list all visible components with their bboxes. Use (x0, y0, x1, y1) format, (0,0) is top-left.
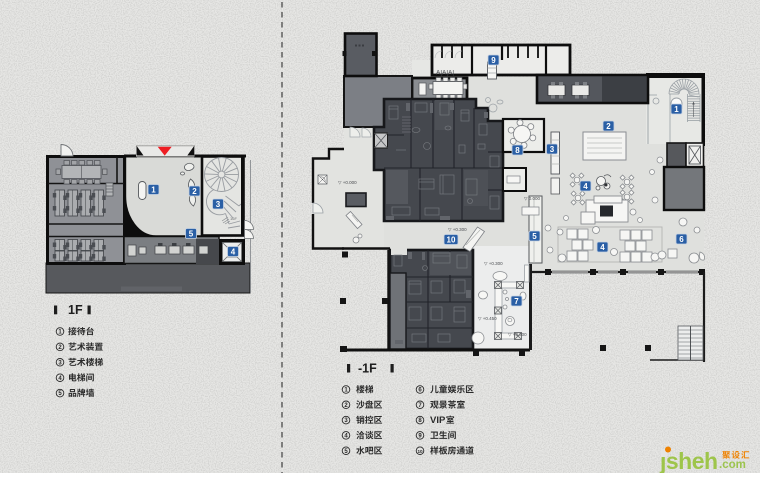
svg-text:1F: 1F (68, 303, 83, 317)
svg-text:▽ +0.450: ▽ +0.450 (478, 316, 497, 321)
svg-text:6: 6 (679, 235, 684, 244)
svg-text:4: 4 (231, 248, 236, 257)
svg-text:▽ +0.000: ▽ +0.000 (338, 180, 357, 185)
svg-text:4: 4 (600, 243, 605, 252)
svg-text:▽ +0.300: ▽ +0.300 (448, 227, 467, 232)
svg-text:1: 1 (151, 186, 156, 195)
svg-text:3: 3 (550, 145, 555, 154)
svg-text:2: 2 (606, 122, 611, 131)
svg-text:A|A|A|: A|A|A| (436, 70, 454, 77)
svg-text:16F: 16F (230, 216, 237, 221)
svg-text:7: 7 (514, 297, 519, 306)
svg-text:3: 3 (216, 200, 221, 209)
svg-text:10: 10 (447, 236, 456, 245)
svg-text:5: 5 (532, 232, 537, 241)
svg-text:1: 1 (674, 105, 679, 114)
svg-text:▽ +0.300: ▽ +0.300 (508, 332, 527, 337)
svg-text:9: 9 (491, 56, 496, 65)
svg-text:4: 4 (583, 182, 588, 191)
svg-text:▽ 0.000: ▽ 0.000 (524, 196, 540, 201)
svg-text:2: 2 (192, 187, 197, 196)
svg-text:VIP: VIP (430, 415, 446, 426)
svg-text:5: 5 (189, 230, 194, 239)
svg-text:-1F: -1F (358, 362, 377, 376)
svg-text:10: 10 (417, 449, 423, 454)
svg-text:.com: .com (719, 459, 746, 471)
svg-text:▽ +0.300: ▽ +0.300 (484, 261, 503, 266)
svg-text:8: 8 (515, 146, 520, 155)
